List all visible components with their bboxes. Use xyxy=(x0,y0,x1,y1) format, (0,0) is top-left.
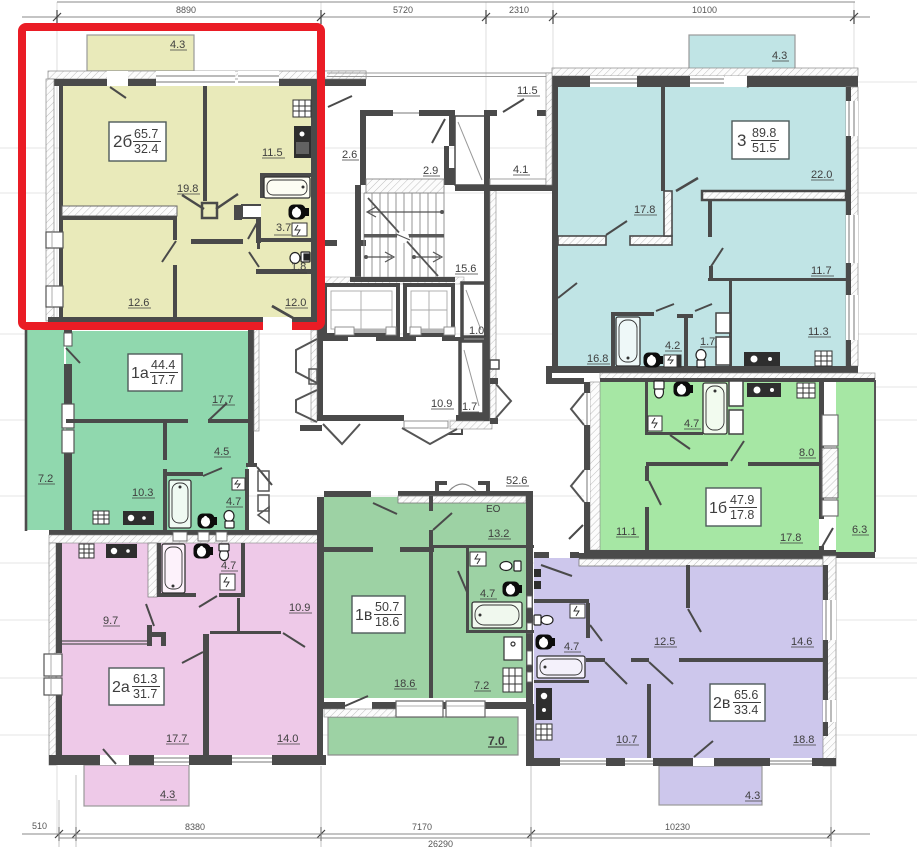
svg-text:22.0: 22.0 xyxy=(811,169,832,181)
svg-text:5720: 5720 xyxy=(393,5,413,15)
svg-text:26290: 26290 xyxy=(428,839,453,847)
svg-text:10.9: 10.9 xyxy=(289,602,310,614)
svg-text:15.6: 15.6 xyxy=(455,263,476,275)
svg-text:7.2: 7.2 xyxy=(38,473,53,485)
svg-text:17.8: 17.8 xyxy=(730,508,754,522)
svg-text:2.9: 2.9 xyxy=(423,165,438,177)
svg-text:4.7: 4.7 xyxy=(221,560,236,572)
svg-text:61.3: 61.3 xyxy=(133,672,157,686)
svg-text:2310: 2310 xyxy=(509,5,529,15)
svg-text:17.8: 17.8 xyxy=(634,204,655,216)
svg-text:1.7: 1.7 xyxy=(462,401,477,413)
svg-text:32.4: 32.4 xyxy=(134,142,158,156)
svg-text:7.0: 7.0 xyxy=(488,734,505,748)
svg-text:65.6: 65.6 xyxy=(734,688,758,702)
svg-text:4.2: 4.2 xyxy=(665,340,680,352)
svg-text:17.7: 17.7 xyxy=(151,373,175,387)
svg-text:4.7: 4.7 xyxy=(480,588,495,600)
svg-text:65.7: 65.7 xyxy=(134,127,158,141)
svg-text:4.3: 4.3 xyxy=(745,790,760,802)
svg-text:51.5: 51.5 xyxy=(752,141,776,155)
svg-text:18.8: 18.8 xyxy=(793,734,814,746)
svg-text:11.3: 11.3 xyxy=(808,326,829,338)
svg-text:10.9: 10.9 xyxy=(431,398,452,410)
svg-text:11.5: 11.5 xyxy=(262,147,283,159)
svg-text:2.6: 2.6 xyxy=(342,149,357,161)
svg-text:4.7: 4.7 xyxy=(564,641,579,653)
svg-text:11.1: 11.1 xyxy=(616,526,637,538)
svg-text:10.7: 10.7 xyxy=(616,734,637,746)
svg-text:44.4: 44.4 xyxy=(151,358,175,372)
svg-text:4.7: 4.7 xyxy=(684,418,699,430)
svg-text:9.7: 9.7 xyxy=(103,615,118,627)
svg-text:3: 3 xyxy=(737,131,746,150)
svg-text:18.6: 18.6 xyxy=(394,678,415,690)
svg-text:12.0: 12.0 xyxy=(285,297,306,309)
svg-text:16.8: 16.8 xyxy=(587,353,608,365)
svg-text:4.3: 4.3 xyxy=(170,39,185,51)
svg-text:47.9: 47.9 xyxy=(730,493,754,507)
svg-text:1а: 1а xyxy=(131,365,149,382)
svg-text:10.3: 10.3 xyxy=(132,487,153,499)
svg-text:2а: 2а xyxy=(112,679,130,696)
svg-text:1.8: 1.8 xyxy=(291,261,306,273)
svg-text:33.4: 33.4 xyxy=(734,703,758,717)
svg-text:8.0: 8.0 xyxy=(799,447,814,459)
svg-text:1б: 1б xyxy=(709,500,727,517)
svg-text:8890: 8890 xyxy=(176,5,196,15)
svg-text:17.7: 17.7 xyxy=(166,733,187,745)
svg-text:50.7: 50.7 xyxy=(375,600,399,614)
svg-text:52.6: 52.6 xyxy=(506,475,527,487)
svg-text:10230: 10230 xyxy=(665,822,690,832)
svg-text:4.3: 4.3 xyxy=(160,789,175,801)
svg-text:4.1: 4.1 xyxy=(513,164,528,176)
svg-text:8380: 8380 xyxy=(185,822,205,832)
svg-text:7.2: 7.2 xyxy=(474,680,489,692)
svg-text:89.8: 89.8 xyxy=(752,126,776,140)
svg-text:18.6: 18.6 xyxy=(375,615,399,629)
svg-text:1в: 1в xyxy=(355,607,372,624)
svg-text:1.7: 1.7 xyxy=(700,336,715,348)
svg-text:14.6: 14.6 xyxy=(791,636,812,648)
svg-text:14.0: 14.0 xyxy=(277,733,298,745)
svg-text:ЕО: ЕО xyxy=(486,504,501,515)
svg-text:10100: 10100 xyxy=(692,5,717,15)
svg-text:11.5: 11.5 xyxy=(517,85,538,97)
svg-text:13.2: 13.2 xyxy=(488,528,509,540)
svg-text:12.5: 12.5 xyxy=(654,636,675,648)
svg-text:4.3: 4.3 xyxy=(772,50,787,62)
svg-text:6.3: 6.3 xyxy=(852,524,867,536)
svg-text:17.8: 17.8 xyxy=(780,532,801,544)
svg-text:7170: 7170 xyxy=(412,822,432,832)
svg-text:2б: 2б xyxy=(113,132,132,151)
svg-text:4.7: 4.7 xyxy=(226,496,241,508)
svg-text:1.0: 1.0 xyxy=(469,325,484,337)
svg-text:510: 510 xyxy=(32,821,47,831)
svg-text:3.7: 3.7 xyxy=(276,222,291,234)
svg-text:19.8: 19.8 xyxy=(177,183,198,195)
svg-text:4.5: 4.5 xyxy=(214,446,229,458)
svg-text:17.7: 17.7 xyxy=(212,394,233,406)
svg-text:12.6: 12.6 xyxy=(128,297,149,309)
svg-text:31.7: 31.7 xyxy=(133,687,157,701)
svg-text:2в: 2в xyxy=(713,695,730,712)
svg-text:11.7: 11.7 xyxy=(811,265,832,277)
